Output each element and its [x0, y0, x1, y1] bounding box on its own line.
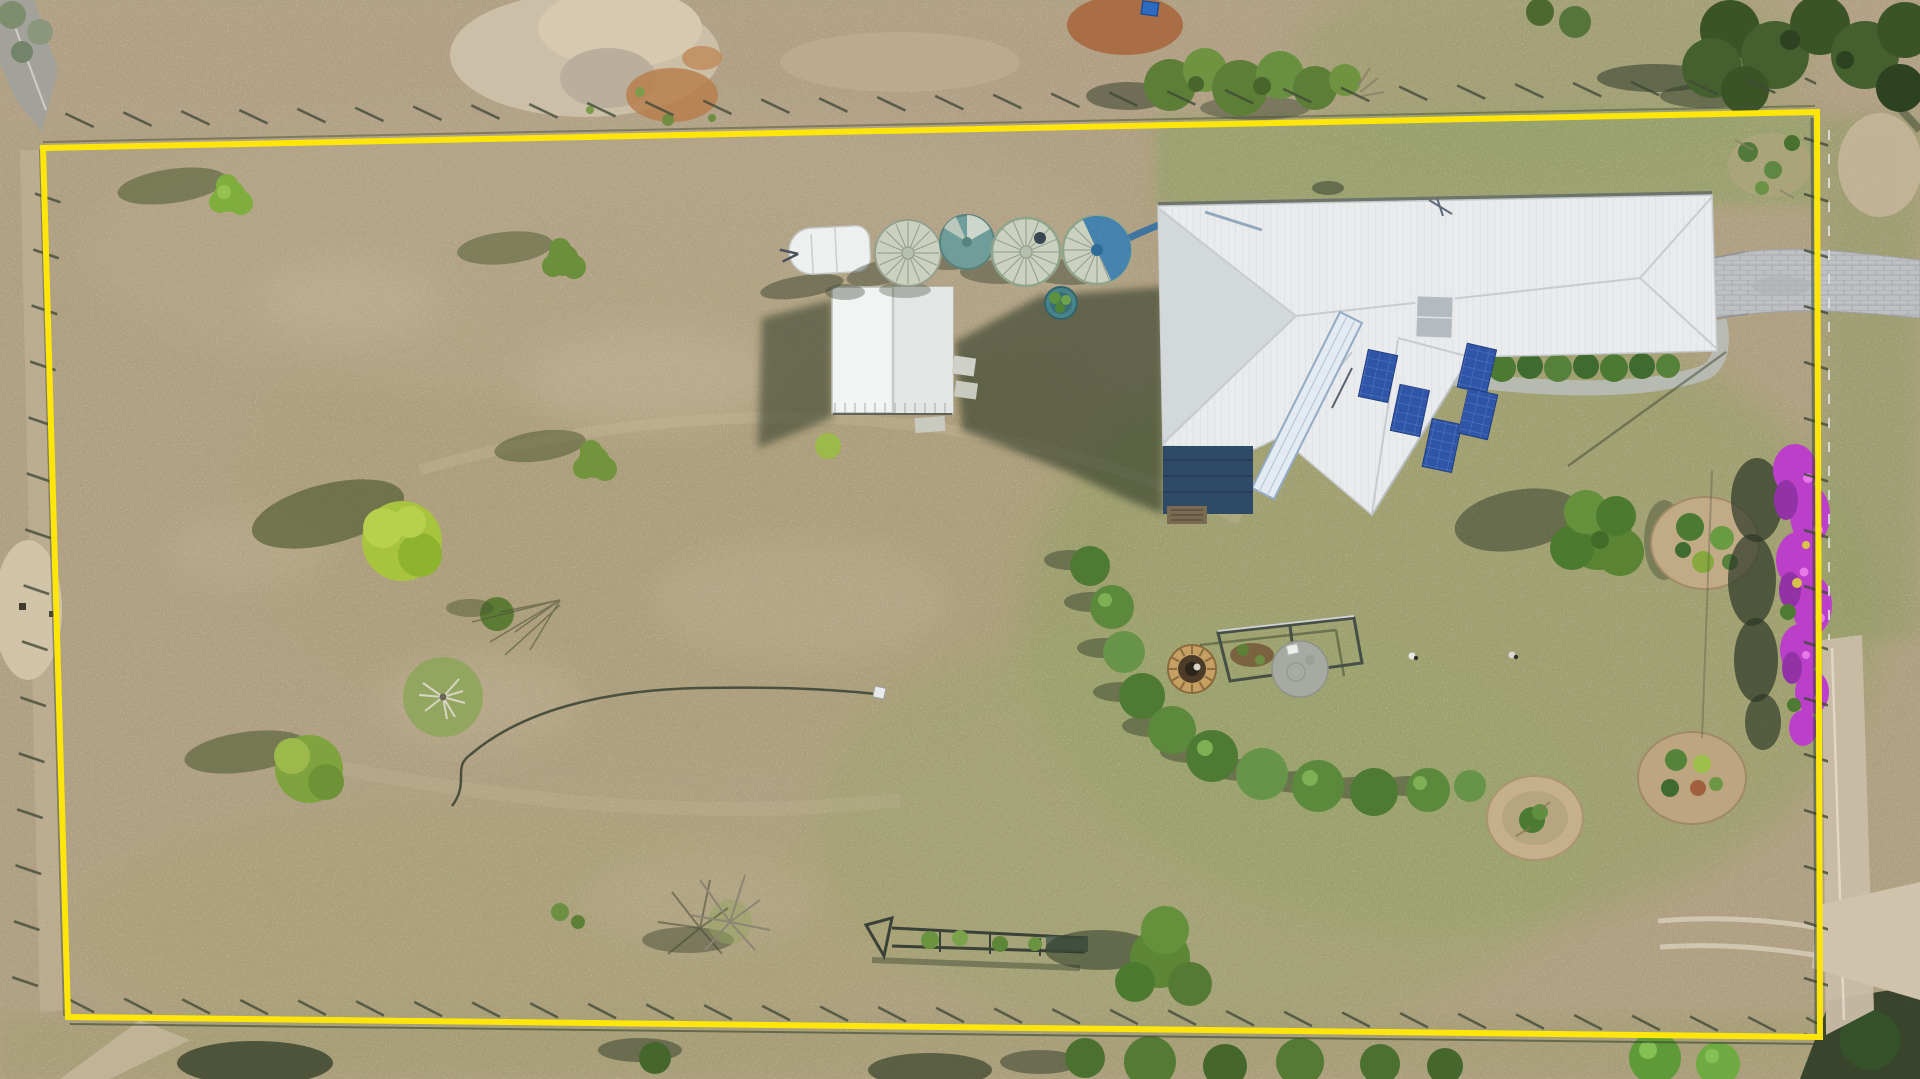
- concrete-pad: [1272, 641, 1328, 697]
- lime-bush: [362, 501, 442, 581]
- potted-plant: [1045, 287, 1077, 319]
- concrete-pad-3: [915, 416, 946, 433]
- white-chair: [1286, 644, 1299, 655]
- water-tank-1: [875, 220, 941, 286]
- mulch-circle-shrub: [1487, 776, 1583, 860]
- shrub-pair-b: [571, 915, 585, 929]
- dirt-patch-northeast: [1838, 113, 1920, 217]
- concrete-pad-2: [954, 381, 978, 400]
- wheelie-bin: [1141, 1, 1159, 16]
- roof-skylight: [1415, 295, 1453, 338]
- shrub-by-shed: [815, 433, 841, 459]
- shrub-pair-a: [551, 903, 569, 921]
- object-shadow-north-lawn: [1312, 181, 1344, 195]
- veranda-deck: [1163, 446, 1253, 524]
- water-tank-2: [940, 215, 994, 269]
- water-tank-3: [992, 218, 1060, 286]
- aerial-photo-canvas: [0, 0, 1920, 1079]
- sprinkler: [873, 686, 886, 699]
- fire-pit: [1168, 645, 1216, 693]
- dead-white-shrub: [403, 657, 483, 737]
- aerial-photo: Aerial drone photo of a rural acreage pr…: [0, 0, 1920, 1079]
- mulch-circle-plants: [1638, 732, 1746, 824]
- tank-port: [1034, 232, 1046, 244]
- concrete-pad-1: [952, 356, 976, 377]
